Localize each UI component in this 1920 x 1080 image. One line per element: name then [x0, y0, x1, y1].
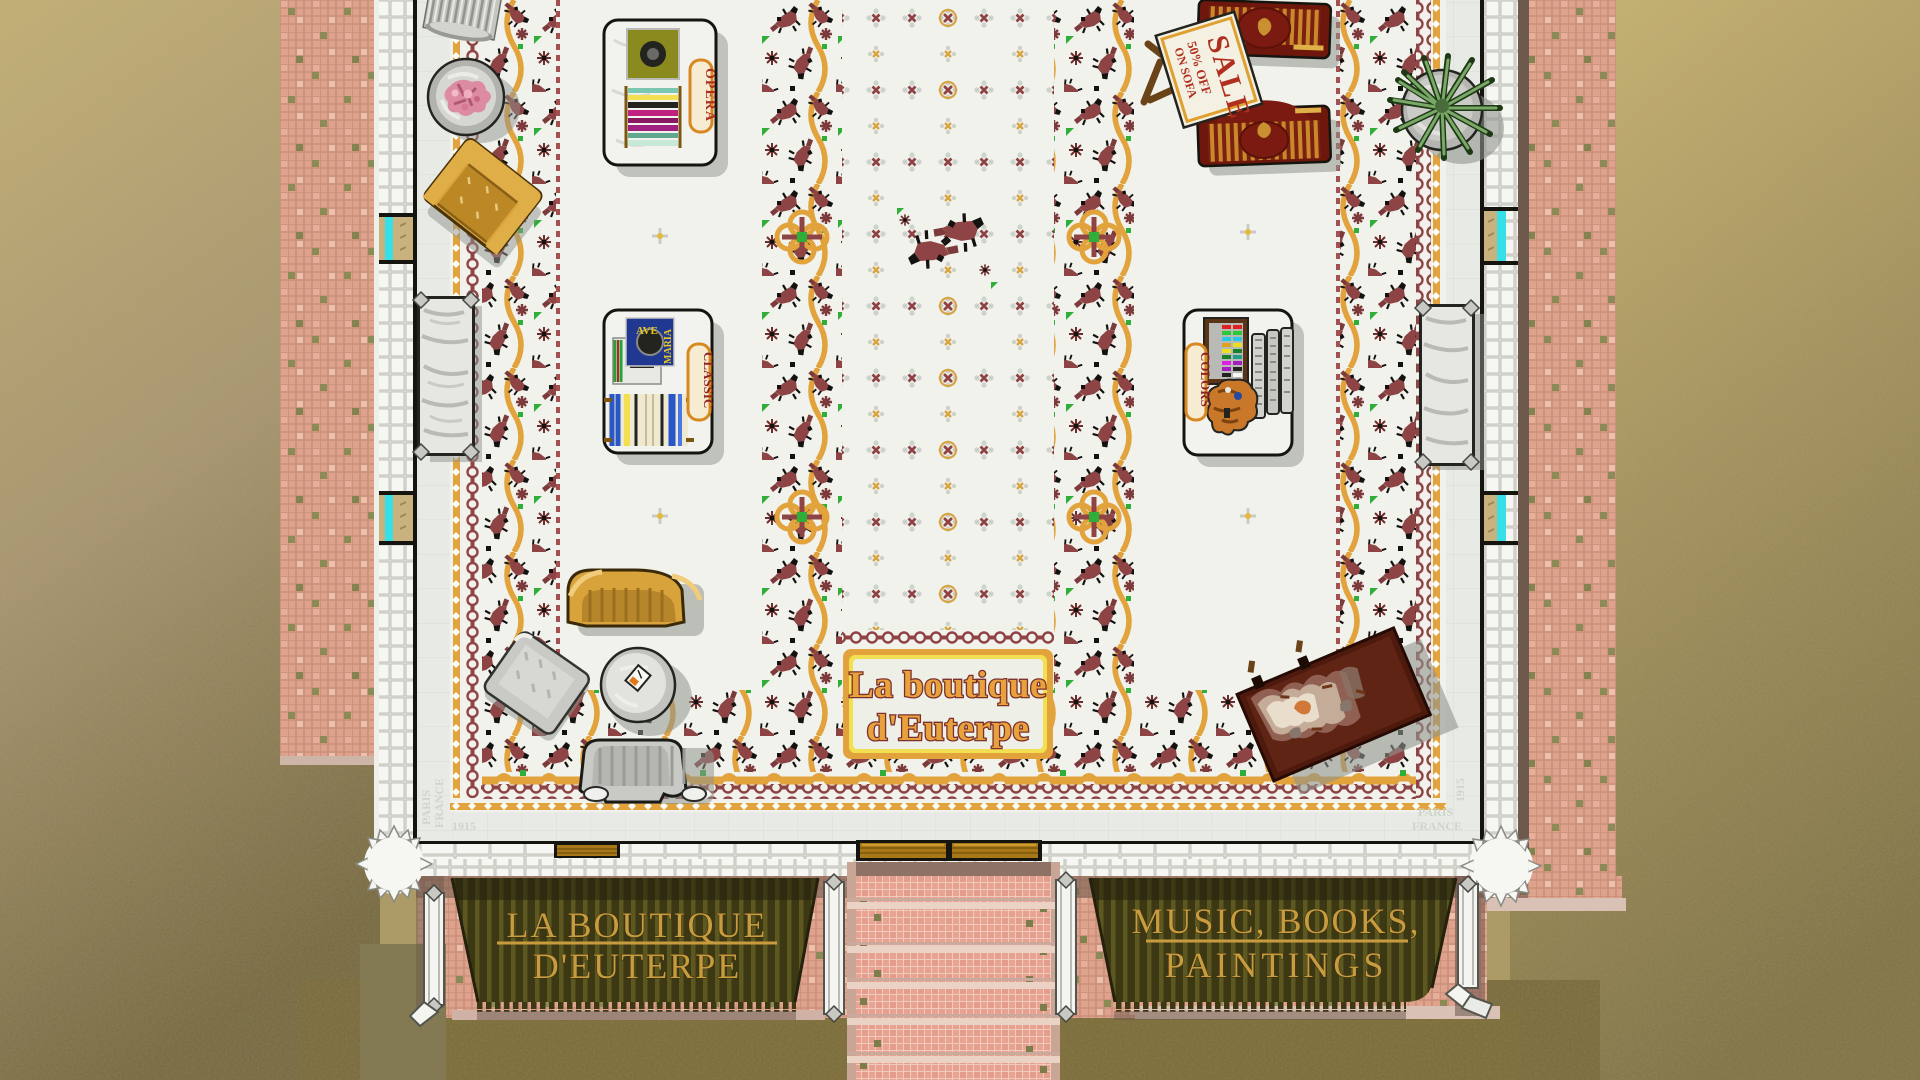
svg-text:d'Euterpe: d'Euterpe	[867, 708, 1030, 749]
svg-text:CLASSIC: CLASSIC	[701, 352, 716, 408]
svg-text:1915: 1915	[452, 819, 476, 833]
svg-text:D'EUTERPE: D'EUTERPE	[533, 946, 741, 986]
svg-text:COLORS: COLORS	[1198, 352, 1213, 407]
svg-text:OPERA: OPERA	[702, 68, 717, 122]
svg-text:LA BOUTIQUE: LA BOUTIQUE	[507, 905, 768, 945]
svg-text:1915: 1915	[1453, 778, 1467, 802]
svg-text:AVE: AVE	[636, 325, 658, 337]
svg-text:FRANCE: FRANCE	[1412, 819, 1462, 833]
svg-text:FRANCE: FRANCE	[432, 778, 446, 828]
svg-text:PARIS: PARIS	[419, 790, 433, 825]
svg-text:La boutique: La boutique	[849, 665, 1047, 706]
svg-text:PARIS: PARIS	[1418, 805, 1453, 819]
svg-text:PAINTINGS: PAINTINGS	[1165, 945, 1388, 985]
svg-text:MUSIC, BOOKS,: MUSIC, BOOKS,	[1131, 901, 1420, 941]
svg-text:MARIA: MARIA	[663, 328, 674, 364]
